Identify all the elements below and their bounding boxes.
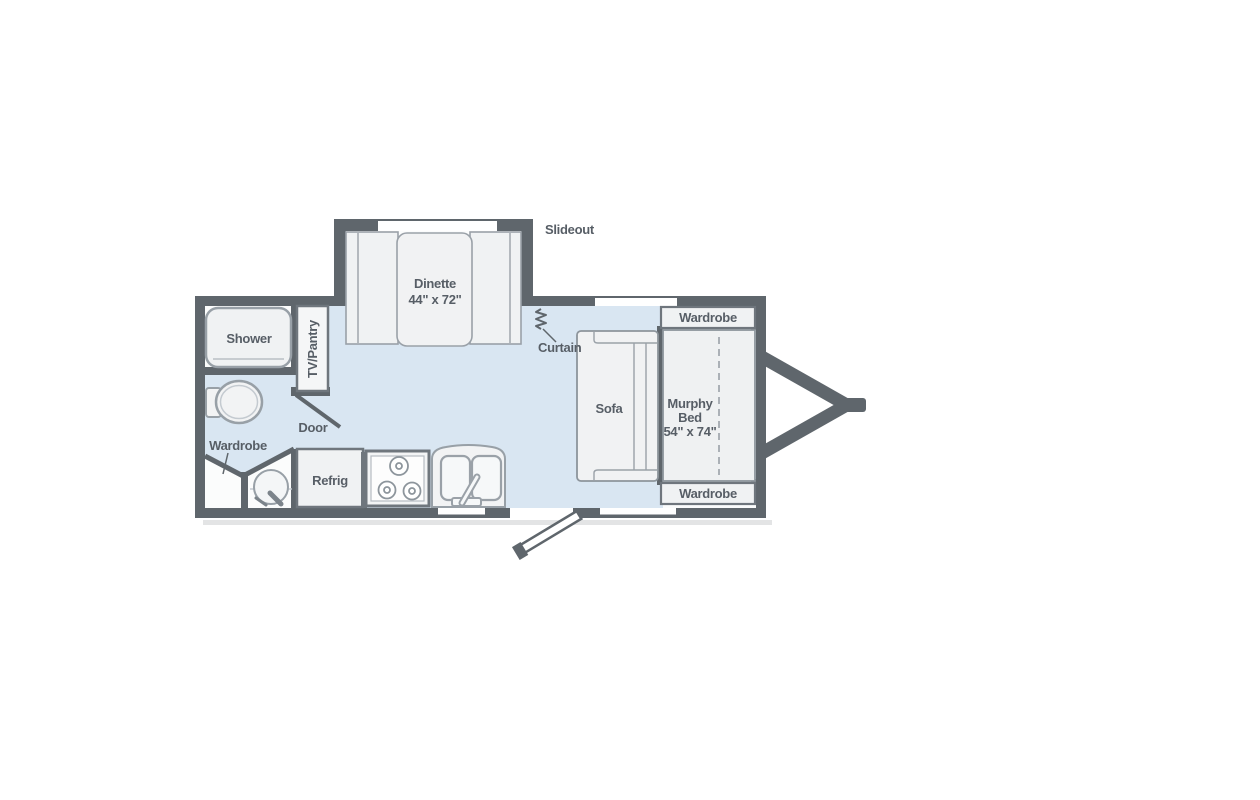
drop-shadow xyxy=(203,520,772,525)
dinette-bench-left xyxy=(346,232,398,344)
label-refrig: Refrig xyxy=(312,473,348,488)
label-curtain: Curtain xyxy=(538,340,582,355)
label-murphy-size: 54" x 74" xyxy=(663,424,716,439)
label-sofa: Sofa xyxy=(596,401,624,416)
window-bottom-kitchen xyxy=(438,508,485,515)
wall-slideout-right xyxy=(521,219,533,306)
dinette-bench-right xyxy=(470,232,521,344)
label-wardrobe-bottom: Wardrobe xyxy=(679,486,737,501)
label-shower: Shower xyxy=(226,331,271,346)
window-bottom-sofa xyxy=(600,508,676,515)
floorplan-svg: Slideout Dinette 44" x 72" Curtain Wardr… xyxy=(0,0,1260,800)
wall-top-left xyxy=(195,296,346,306)
label-murphy-1: Murphy xyxy=(667,396,713,411)
label-wardrobe-top: Wardrobe xyxy=(679,310,737,325)
entry-door-opening xyxy=(510,508,573,518)
label-slideout: Slideout xyxy=(545,222,595,237)
label-dinette: Dinette xyxy=(414,276,456,291)
window-top-right xyxy=(595,298,677,306)
wall-slideout-left xyxy=(334,219,346,306)
hitch-icon xyxy=(762,357,866,453)
label-murphy-2: Bed xyxy=(678,410,702,425)
label-wardrobe-bath: Wardrobe xyxy=(209,438,267,453)
label-tv-pantry: TV/Pantry xyxy=(305,319,320,378)
label-door: Door xyxy=(298,420,327,435)
window-slideout xyxy=(378,221,497,231)
wall-left xyxy=(195,296,205,518)
floorplan-canvas: Slideout Dinette 44" x 72" Curtain Wardr… xyxy=(0,0,1260,800)
toilet-bowl xyxy=(216,381,262,423)
label-dinette-size: 44" x 72" xyxy=(408,292,461,307)
